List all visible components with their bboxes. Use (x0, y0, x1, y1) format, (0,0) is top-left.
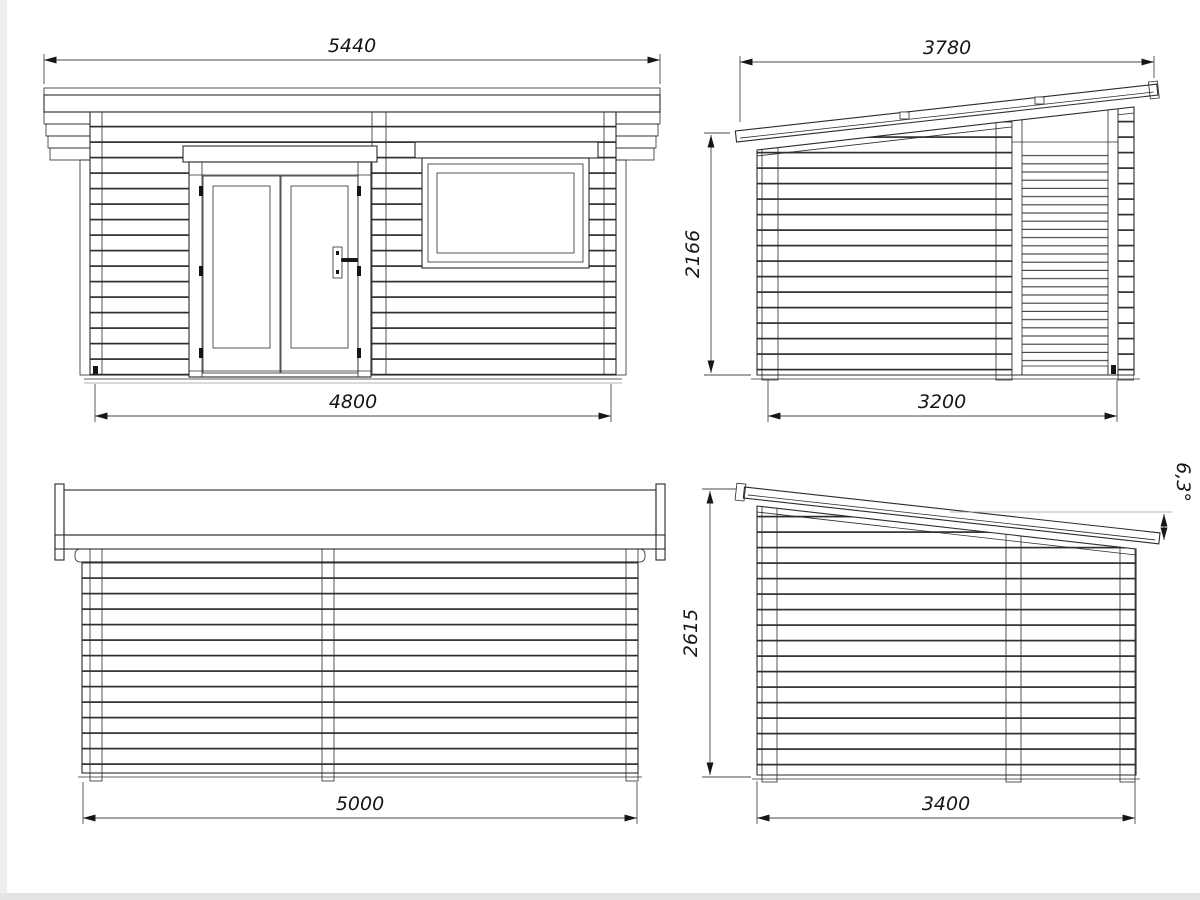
dim-label-side-right-roof-length: 3780 (923, 37, 971, 59)
dimension-side-right-wall-height: 2166 (682, 133, 751, 375)
side-elevation-right-view: 3780 (682, 37, 1159, 422)
log-step (44, 112, 90, 124)
anchor-bracket (1111, 365, 1116, 374)
dim-label-side-left-wall-length: 3400 (922, 793, 970, 815)
log-step (46, 124, 90, 136)
side-right-wall (757, 100, 1134, 380)
roof-fascia-board (44, 95, 660, 112)
log-tabs-left (80, 160, 90, 375)
dimension-side-right-roof-length: 3780 (740, 37, 1154, 122)
corner-log-steps-left (44, 112, 90, 160)
rear-fascia-board (55, 535, 665, 549)
window-glass-pane (437, 173, 574, 253)
anchor-bracket (93, 366, 98, 374)
dimension-front-roof-width: 5440 (44, 35, 660, 84)
hinge-icon (357, 186, 361, 196)
handle-keyhole (336, 270, 339, 274)
log-step (616, 136, 656, 148)
rear-elevation-view: 5000 (55, 484, 665, 824)
hinge-icon (199, 186, 203, 196)
dimension-side-right-wall-length: 3200 (768, 380, 1117, 422)
dim-label-roof-angle: 6,3° (1172, 462, 1194, 502)
handle-lever (341, 258, 358, 262)
hinge-icon (199, 348, 203, 358)
roof-top-edge (44, 88, 660, 95)
dim-label-side-right-wall-length: 3200 (918, 391, 966, 413)
log-step (616, 112, 660, 124)
roof-parapet-band (64, 490, 656, 535)
hinge-icon (357, 348, 361, 358)
dim-label-front-wall-width: 4800 (329, 391, 377, 413)
dimension-rear-wall-width: 5000 (83, 782, 637, 824)
front-elevation-view: 5440 (44, 35, 660, 422)
page-left-edge-strip (0, 0, 7, 900)
side-door-slats (1022, 148, 1108, 366)
log-step (616, 148, 654, 160)
door-header-board (183, 146, 377, 162)
double-door (183, 146, 377, 377)
log-tabs-right (616, 160, 626, 375)
log-step (616, 124, 658, 136)
rear-wall-logs (82, 562, 638, 773)
hinge-icon (357, 266, 361, 276)
purlin-block (900, 112, 909, 119)
top-log (75, 549, 645, 562)
purlin-block (1035, 97, 1044, 104)
handle-keyhole (336, 251, 339, 255)
window (415, 142, 598, 268)
dimension-roof-angle: 6,3° (950, 462, 1194, 540)
dimension-side-left-wall-height: 2615 (680, 489, 751, 777)
technical-drawing-page: 5440 (0, 0, 1200, 900)
dim-label-side-right-wall-height: 2166 (682, 230, 704, 278)
side-elevation-left-view: 2615 6,3° 3400 (680, 462, 1194, 824)
dim-label-rear-wall-width: 5000 (336, 793, 384, 815)
side-left-wall (757, 500, 1136, 775)
corner-log-steps-right (616, 112, 660, 160)
elevation-drawing-canvas: 5440 (0, 0, 1200, 900)
dim-label-side-left-wall-height: 2615 (680, 609, 702, 657)
dimension-front-wall-width: 4800 (95, 384, 611, 422)
page-bottom-edge-strip (0, 893, 1200, 900)
dim-label-front-roof-width: 5440 (328, 35, 376, 57)
log-step (48, 136, 90, 148)
log-step (50, 148, 90, 160)
dimension-side-left-wall-length: 3400 (757, 781, 1135, 824)
hinge-icon (199, 266, 203, 276)
wall-logs (757, 500, 1136, 775)
slatted-side-door (1012, 100, 1118, 375)
window-header-board (415, 142, 598, 158)
